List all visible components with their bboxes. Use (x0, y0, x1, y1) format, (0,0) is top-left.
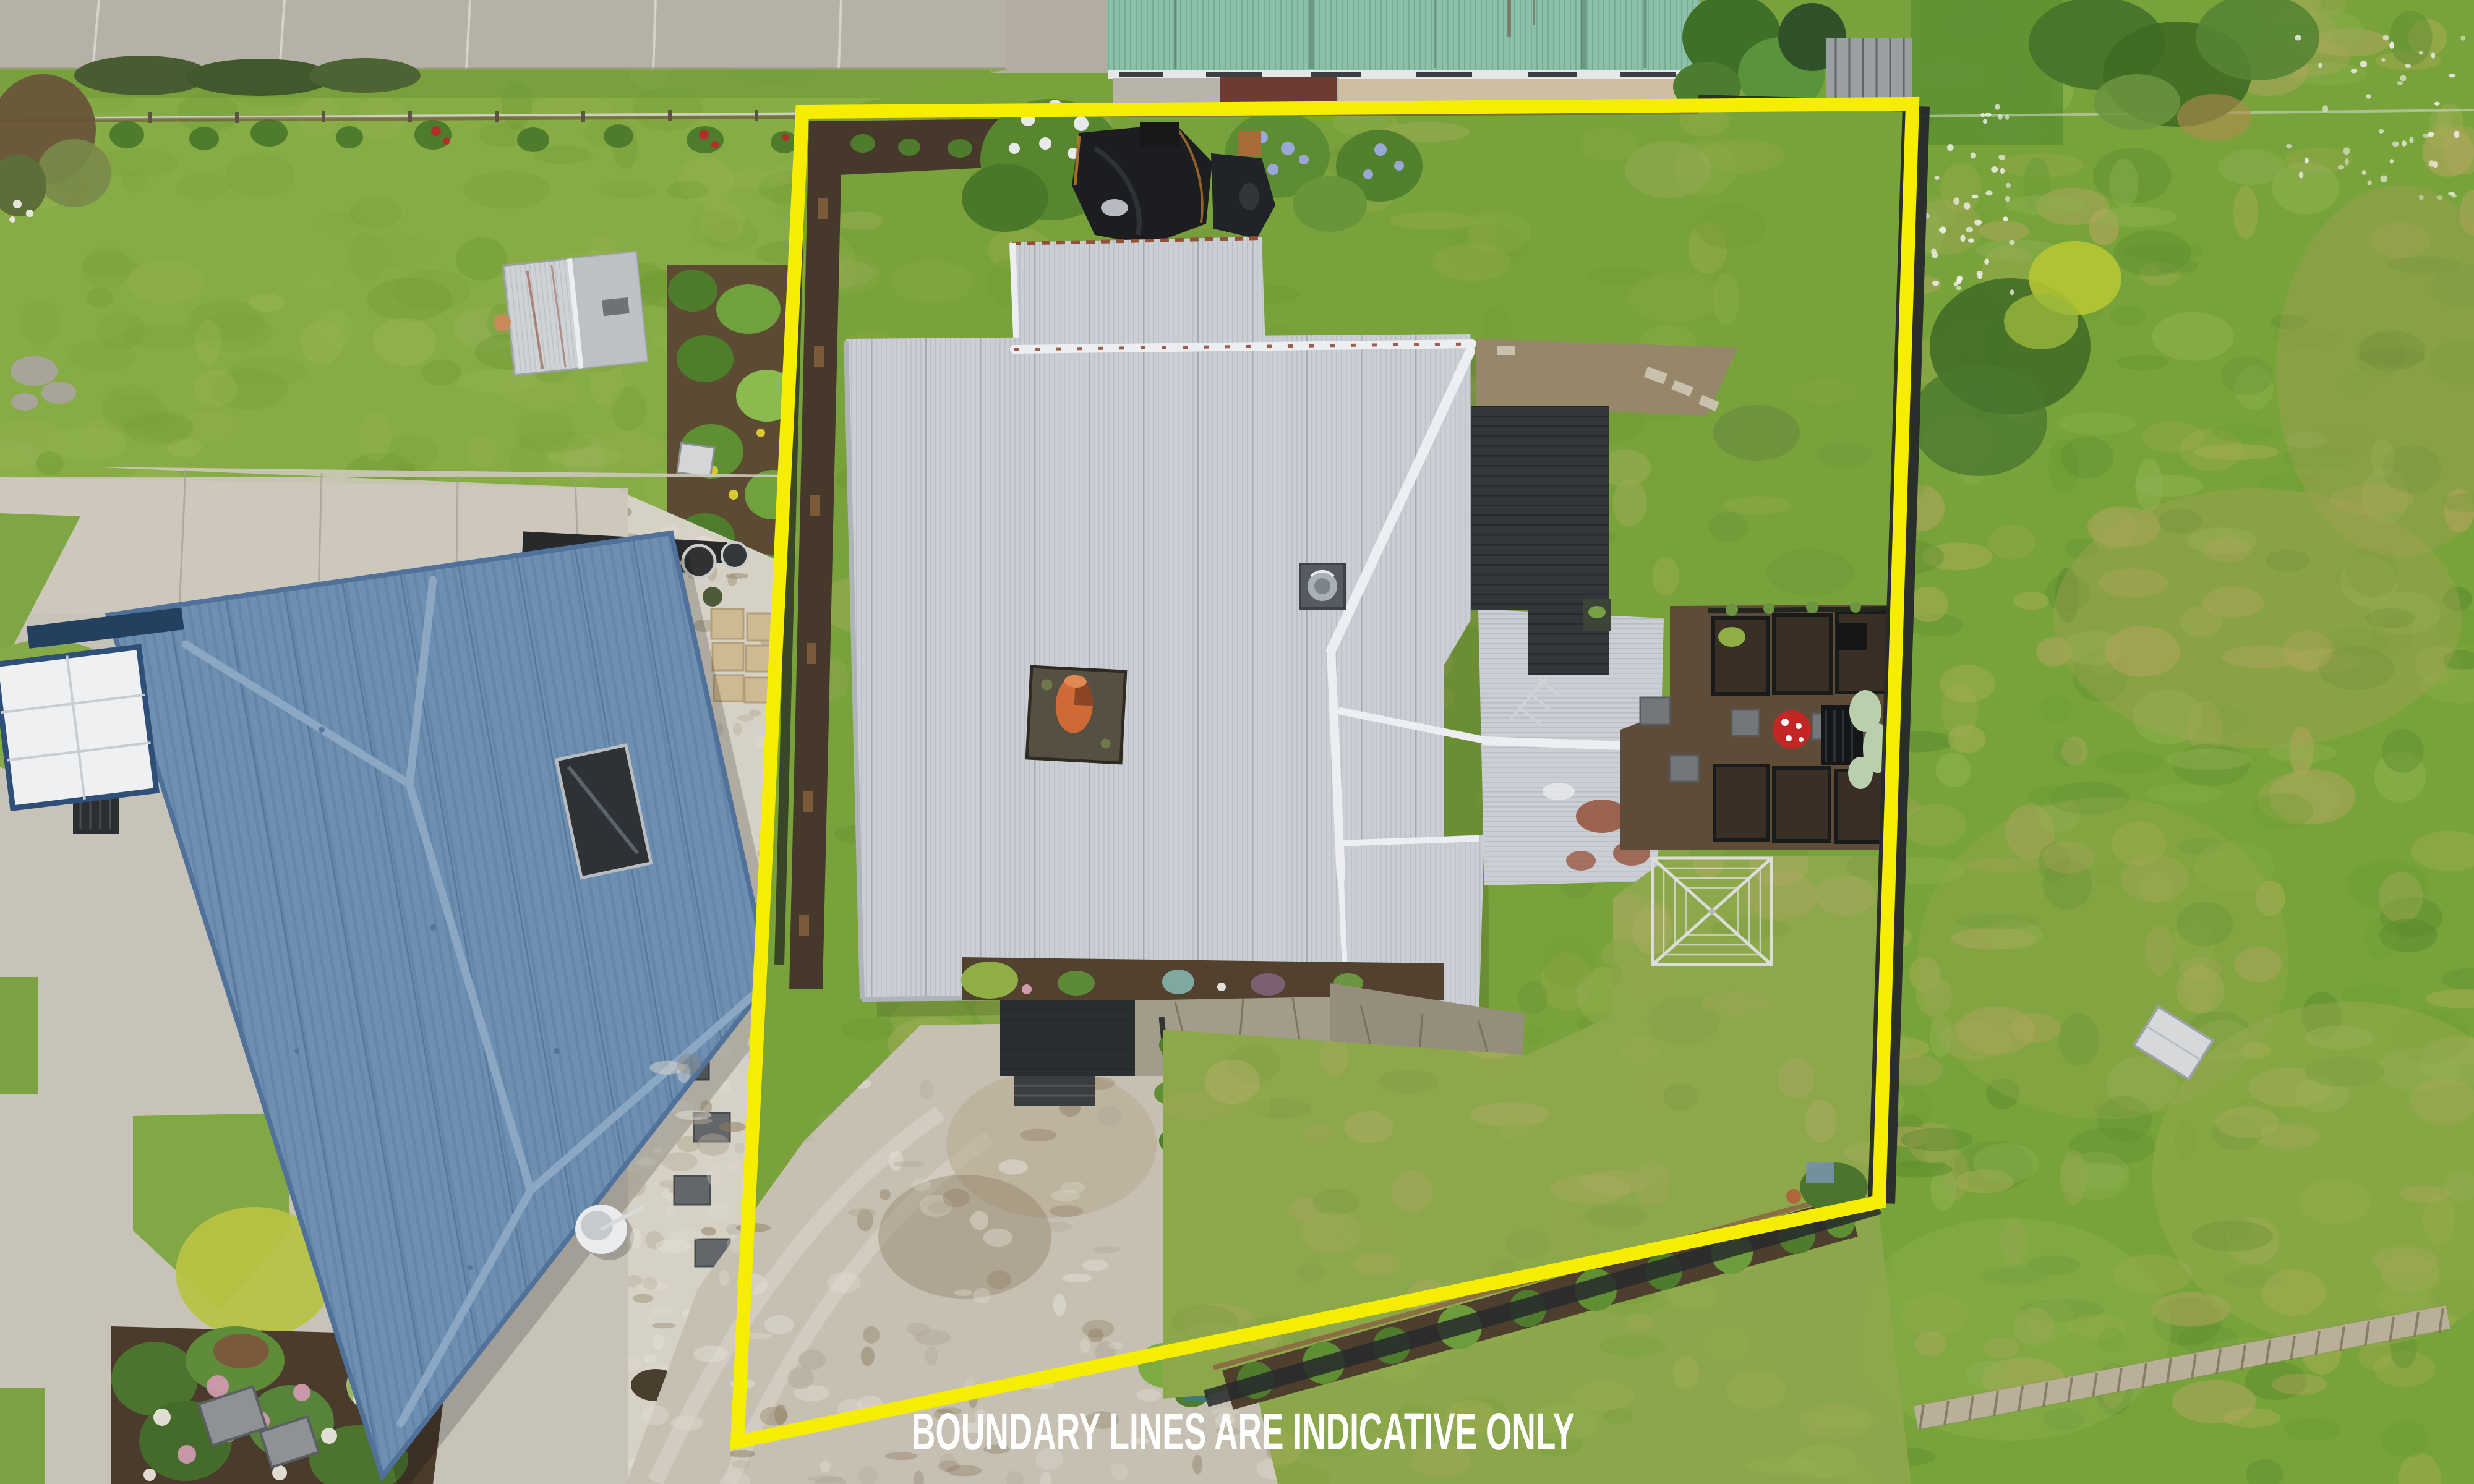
top-structures (1107, 0, 1912, 111)
grass-texture (1901, 1128, 1973, 1151)
grass-texture (1948, 725, 1986, 753)
grass-texture (1977, 271, 1983, 276)
grass-texture (1109, 1342, 1123, 1350)
compost-bin (1837, 623, 1867, 650)
grass-texture (1973, 1143, 2039, 1183)
grass-texture (422, 360, 461, 386)
grass-texture (954, 1289, 972, 1296)
grass-texture (1972, 195, 1979, 199)
grass-texture (315, 309, 353, 349)
grass-texture (734, 1143, 745, 1153)
grass-texture (2061, 736, 2087, 765)
grass-texture (1998, 155, 2005, 160)
grass-texture (2362, 170, 2367, 175)
grass-texture (2040, 696, 2073, 723)
grass-texture (1903, 804, 1966, 846)
grass-texture (2379, 129, 2384, 134)
grass-texture (2428, 132, 2434, 137)
grass-texture (2219, 149, 2286, 185)
grass-texture (1980, 113, 1985, 117)
grass-texture (662, 1152, 698, 1171)
grass-texture (943, 1189, 970, 1208)
grass-texture (1082, 1260, 1108, 1271)
grass-texture (2005, 196, 2010, 202)
grass-texture (1964, 202, 1971, 210)
grass-texture (1377, 1070, 1439, 1093)
grass-texture (719, 1122, 746, 1132)
grass-texture (1984, 258, 1989, 265)
grass-texture (2382, 729, 2424, 773)
grass-texture (732, 1460, 750, 1469)
terracotta-pot (494, 314, 511, 331)
grass-texture (1053, 1294, 1066, 1316)
grass-texture (2095, 751, 2164, 774)
grass-texture (787, 1367, 814, 1389)
grass-texture (983, 1229, 1012, 1247)
lattice (1238, 131, 1261, 156)
grass-texture (1204, 1059, 1260, 1104)
grass-texture (848, 1208, 877, 1216)
grass-texture (2345, 158, 2348, 166)
grass-texture (2284, 1418, 2341, 1441)
grass-texture (20, 299, 60, 346)
grass-texture (1080, 1339, 1090, 1354)
grass-texture (693, 1345, 727, 1362)
grass-texture (2402, 140, 2407, 147)
grass-texture (2452, 194, 2457, 198)
grass-texture (1088, 1329, 1104, 1343)
grass-texture (82, 247, 130, 289)
grass-texture (861, 1347, 875, 1367)
grass-texture (645, 1315, 656, 1324)
grass-texture (2431, 52, 2435, 59)
grass-texture (2392, 141, 2399, 147)
grass-texture (2365, 918, 2398, 959)
grass-texture (2419, 51, 2423, 54)
grass-texture (2383, 35, 2389, 40)
grass-texture (733, 723, 742, 736)
grass-texture (1940, 163, 1981, 213)
grass-texture (372, 318, 436, 366)
grass-texture (688, 526, 698, 540)
grass-texture (863, 1326, 880, 1344)
stepping-stones-tan (711, 609, 777, 702)
grass-texture (1792, 379, 1857, 404)
grass-texture (2351, 69, 2358, 73)
grass-texture (2449, 74, 2455, 77)
grass-texture (2389, 41, 2394, 49)
grass-texture (1341, 1225, 1420, 1247)
grass-texture (1663, 1083, 1698, 1111)
grass-texture (737, 715, 754, 722)
grass-texture (2233, 186, 2258, 239)
grass-texture (1766, 549, 1853, 596)
grass-texture (2060, 437, 2113, 479)
grass-texture (643, 1277, 657, 1290)
grass-texture (1389, 211, 1475, 229)
grass-texture (665, 1206, 676, 1216)
grass-texture (1700, 139, 1785, 173)
grass-texture (925, 1345, 938, 1365)
grass-texture (1980, 221, 2029, 241)
grass-texture (1629, 273, 1720, 323)
grass-texture (128, 261, 204, 304)
grass-texture (891, 261, 973, 303)
grass-texture (1932, 252, 1938, 258)
grass-texture (1500, 1116, 1530, 1143)
grass-texture (725, 1162, 740, 1173)
grass-texture (468, 435, 497, 467)
grass-texture (987, 1271, 1011, 1289)
grass-texture (1966, 227, 1973, 232)
grass-texture (677, 1054, 702, 1075)
grass-texture (2397, 81, 2403, 85)
grass-texture (1701, 992, 1770, 1017)
grass-texture (2272, 1374, 2327, 1395)
grass-texture (726, 573, 748, 579)
grass-texture (2212, 424, 2274, 441)
garage-roof (1010, 237, 1265, 352)
grass-texture (1932, 281, 1939, 286)
grass-texture (2368, 181, 2372, 185)
grass-texture (2194, 444, 2280, 460)
grass-texture (2299, 171, 2304, 178)
grass-texture (195, 320, 221, 365)
roadside-hedge (74, 56, 421, 96)
grass-texture (1968, 238, 1974, 243)
grass-texture (2286, 144, 2292, 149)
grass-texture (1988, 525, 2035, 559)
caption: BOUNDARY LINES ARE INDICATIVE ONLY (912, 1402, 1575, 1461)
grass-texture (642, 1405, 669, 1425)
grass-texture (1543, 1205, 1573, 1226)
grass-texture (1633, 1161, 1670, 1205)
grass-texture (760, 1407, 788, 1426)
grass-texture (2381, 58, 2386, 62)
grass-texture (1985, 113, 1991, 117)
grass-texture (2322, 105, 2328, 112)
grass-texture (1020, 1129, 1056, 1142)
grass-texture (384, 435, 437, 469)
grass-texture (938, 1461, 960, 1472)
grass-texture (2318, 63, 2322, 68)
grass-texture (1816, 443, 1872, 467)
grass-texture (1621, 1036, 1659, 1065)
grass-texture (2000, 168, 2005, 174)
grass-texture (1551, 1175, 1631, 1204)
grass-texture (1518, 981, 1548, 1015)
grass-texture (834, 211, 883, 230)
grass-texture (1778, 1058, 1815, 1099)
grass-texture (176, 174, 229, 201)
grass-texture (1960, 235, 1965, 242)
grass-texture (2009, 240, 2014, 245)
grass-texture (1939, 227, 1946, 232)
grass-texture (1995, 104, 2000, 110)
grass-texture (599, 181, 656, 198)
grass-texture (1344, 1111, 1393, 1143)
grass-texture (1392, 1170, 1432, 1213)
grass-texture (1702, 1328, 1750, 1362)
grass-texture (2135, 475, 2204, 497)
grass-texture (630, 1229, 641, 1249)
grass-texture (1137, 1389, 1161, 1401)
grass-texture (2142, 422, 2204, 453)
grass-texture (1542, 934, 1596, 988)
grass-texture (36, 451, 63, 475)
grass-texture (124, 413, 194, 445)
grass-texture (367, 278, 452, 322)
chimney-flue (1300, 564, 1345, 608)
grass-texture (1971, 153, 1976, 159)
grass-texture (228, 356, 307, 386)
gutter (1108, 70, 1700, 79)
grass-texture (1093, 1246, 1121, 1253)
grass-texture (656, 1239, 691, 1253)
grass-texture (456, 237, 507, 281)
grass-texture (2058, 412, 2136, 434)
grass-texture (319, 212, 362, 234)
grass-texture (2110, 305, 2146, 326)
grass-texture (1956, 278, 1961, 284)
grass-texture (2167, 749, 2250, 770)
grass-texture (653, 1334, 664, 1350)
road-gravel-end (1005, 0, 1110, 73)
grass-texture (820, 1460, 830, 1472)
grass-texture (2454, 131, 2460, 138)
grass-texture (1625, 1313, 1652, 1331)
grass-texture (730, 1450, 755, 1458)
grass-texture (2405, 64, 2411, 68)
grass-texture (2014, 592, 2049, 610)
grass-texture (1713, 273, 1739, 325)
grass-texture (970, 1211, 988, 1230)
grass-texture (2460, 36, 2465, 41)
grass-texture (2251, 793, 2314, 829)
grass-texture (2381, 176, 2388, 183)
grass-texture (2006, 183, 2011, 188)
grass-texture (463, 171, 550, 209)
grass-texture (1998, 114, 2003, 120)
grass-texture (122, 172, 147, 192)
grass-texture (2366, 94, 2371, 99)
grass-texture (1991, 166, 1998, 173)
grass-texture (1111, 1463, 1128, 1480)
grass-texture (360, 413, 392, 462)
grass-texture (690, 210, 739, 247)
grass-texture (225, 153, 294, 197)
grass-texture (1985, 190, 1992, 195)
grass-texture (2060, 1152, 2130, 1200)
grass-texture (1953, 197, 1959, 205)
grass-texture (67, 340, 135, 371)
grass-texture (249, 294, 285, 312)
grass-texture (764, 1315, 794, 1334)
grass-texture (1625, 141, 1711, 198)
grass-texture (919, 1080, 933, 1099)
grass-texture (999, 1159, 1028, 1175)
grass-texture (798, 1349, 826, 1370)
grass-texture (841, 1017, 895, 1041)
grass-texture (1050, 1205, 1083, 1217)
trellis-fence (1826, 38, 1912, 105)
grass-texture (86, 288, 113, 308)
grass-texture (1062, 1274, 1092, 1282)
black-crate (1140, 122, 1179, 147)
grass-texture (1296, 1263, 1324, 1281)
grass-texture (2005, 195, 2086, 215)
grass-texture (2390, 159, 2394, 164)
garden-shed (503, 252, 647, 375)
grass-texture (1723, 497, 1791, 514)
grass-texture (2434, 102, 2440, 106)
grass-texture (1805, 1100, 1837, 1143)
grass-texture (2005, 115, 2009, 120)
toadstool-table (1773, 710, 1811, 749)
grass-texture (697, 1133, 730, 1156)
grass-texture (1599, 1335, 1666, 1357)
grass-texture (1708, 512, 1748, 542)
grass-texture (1947, 144, 1954, 151)
grass-texture (650, 1305, 672, 1315)
grass-texture (1051, 1190, 1080, 1201)
green-roof-building (1107, 0, 1700, 108)
grass-texture (2380, 1421, 2429, 1458)
garden-table (677, 443, 714, 477)
grass-texture (297, 271, 331, 296)
grass-texture (1935, 176, 1940, 180)
grass-texture (2117, 355, 2168, 370)
grass-texture (1789, 1445, 1857, 1478)
grass-texture (2152, 312, 2234, 361)
grass-texture (880, 1189, 891, 1200)
grass-texture (1653, 556, 1679, 595)
grass-texture (2379, 872, 2423, 923)
grass-texture (178, 93, 239, 133)
grass-texture (907, 1323, 930, 1336)
grass-texture (633, 1294, 653, 1303)
grass-texture (1320, 1037, 1349, 1076)
grass-texture (2338, 165, 2345, 170)
grass-texture (1673, 1356, 1700, 1389)
brick-chimney (1027, 667, 1126, 763)
grass-texture (707, 1164, 721, 1186)
grass-texture (1726, 1370, 1786, 1409)
grass-texture (2389, 11, 2433, 66)
grass-texture (671, 1415, 703, 1430)
grass-texture (652, 1323, 676, 1328)
grass-texture (2295, 35, 2301, 41)
grass-texture (1936, 753, 1971, 787)
grass-texture (1098, 1106, 1122, 1127)
grass-texture (643, 1354, 656, 1363)
grass-texture (894, 1161, 925, 1167)
grass-texture (1468, 211, 1498, 253)
grass-texture (2429, 160, 2434, 167)
grass-texture (827, 1272, 860, 1293)
grass-texture (1351, 1253, 1403, 1276)
grass-texture (2305, 158, 2309, 163)
aerial-photo: BOUNDARY LINES ARE INDICATIVE ONLY (0, 0, 2474, 1484)
grass-texture (675, 1110, 711, 1120)
grass-texture (1303, 1123, 1330, 1144)
grass-texture (889, 1151, 904, 1171)
grass-texture (670, 1230, 705, 1240)
grass-texture (1695, 203, 1766, 249)
grass-texture (2221, 357, 2273, 395)
grass-texture (2010, 289, 2014, 295)
grass-texture (2400, 75, 2407, 82)
grass-texture (2409, 137, 2413, 143)
grass-texture (1572, 1381, 1635, 1411)
grass-texture (583, 431, 665, 472)
grass-texture (1983, 119, 1987, 124)
grass-texture (1799, 1405, 1872, 1439)
grass-texture (2343, 147, 2350, 155)
grass-texture (2109, 159, 2138, 208)
grass-texture (1313, 1189, 1359, 1216)
grass-texture (706, 1205, 729, 1220)
grass-texture (1586, 1204, 1648, 1229)
grass-texture (2113, 230, 2191, 276)
grass-texture (1974, 220, 1982, 226)
grass-texture (1956, 286, 1962, 291)
grass-texture (510, 440, 546, 485)
grass-texture (973, 1288, 991, 1303)
grass-texture (349, 232, 385, 282)
grass-texture (1815, 876, 1875, 916)
grass-texture (1505, 1229, 1549, 1260)
grass-texture (667, 181, 708, 199)
grass-texture (2146, 784, 2223, 804)
grass-texture (719, 1271, 730, 1286)
grass-texture (2360, 61, 2367, 67)
grass-texture (913, 1179, 931, 1192)
grass-texture (1043, 1222, 1073, 1232)
grass-texture (2172, 1380, 2256, 1423)
grass-texture (2003, 216, 2008, 221)
